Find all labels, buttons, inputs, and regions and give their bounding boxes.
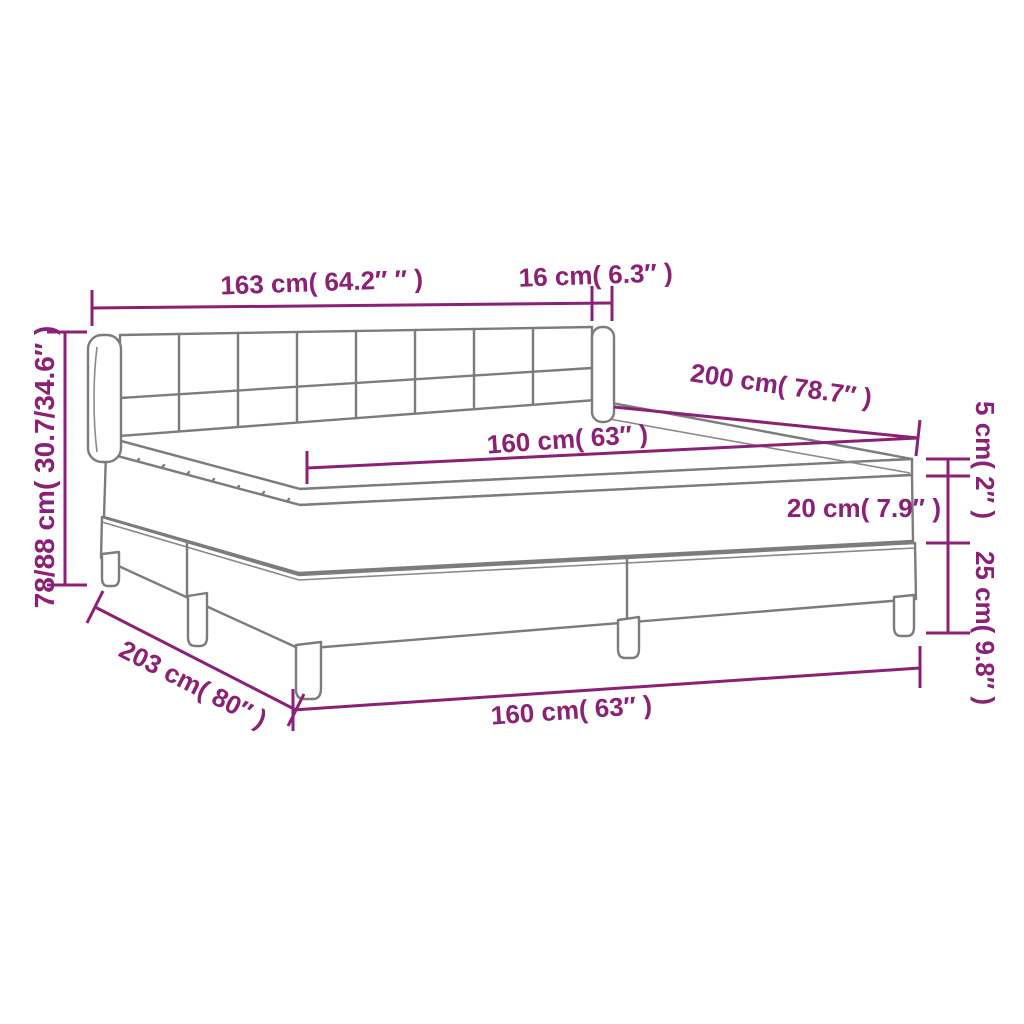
dim-label-bed-length: 200 cm( 78.7″ ) [689, 357, 874, 412]
bed-leg [618, 617, 639, 658]
dim-label-mattress-height: 20 cm( 7.9″ ) [787, 493, 941, 523]
bed-leg [102, 552, 119, 586]
dim-label-topper-height: 5 cm( 2″ ) [970, 401, 1000, 519]
bed-dimension-diagram: 163 cm( 64.2″ ″ ) 16 cm( 6.3″ ) 78/88 cm… [0, 0, 1024, 1024]
headboard-right-wing [592, 327, 614, 422]
headboard-left-wing [88, 335, 121, 462]
dim-label-base-height: 25 cm( 9.8″ ) [970, 551, 1000, 705]
bed-leg [894, 595, 914, 636]
bed-leg [188, 593, 207, 646]
dim-label-wing-depth: 16 cm( 6.3″ ) [518, 257, 673, 292]
page: 163 cm( 64.2″ ″ ) 16 cm( 6.3″ ) 78/88 cm… [0, 0, 1024, 1024]
bed-leg [296, 642, 321, 699]
dim-label-headboard-width: 163 cm( 64.2″ ″ ) [220, 263, 424, 300]
dim-label-height-range: 78/88 cm( 30.7/34.6″ ) [29, 326, 60, 609]
